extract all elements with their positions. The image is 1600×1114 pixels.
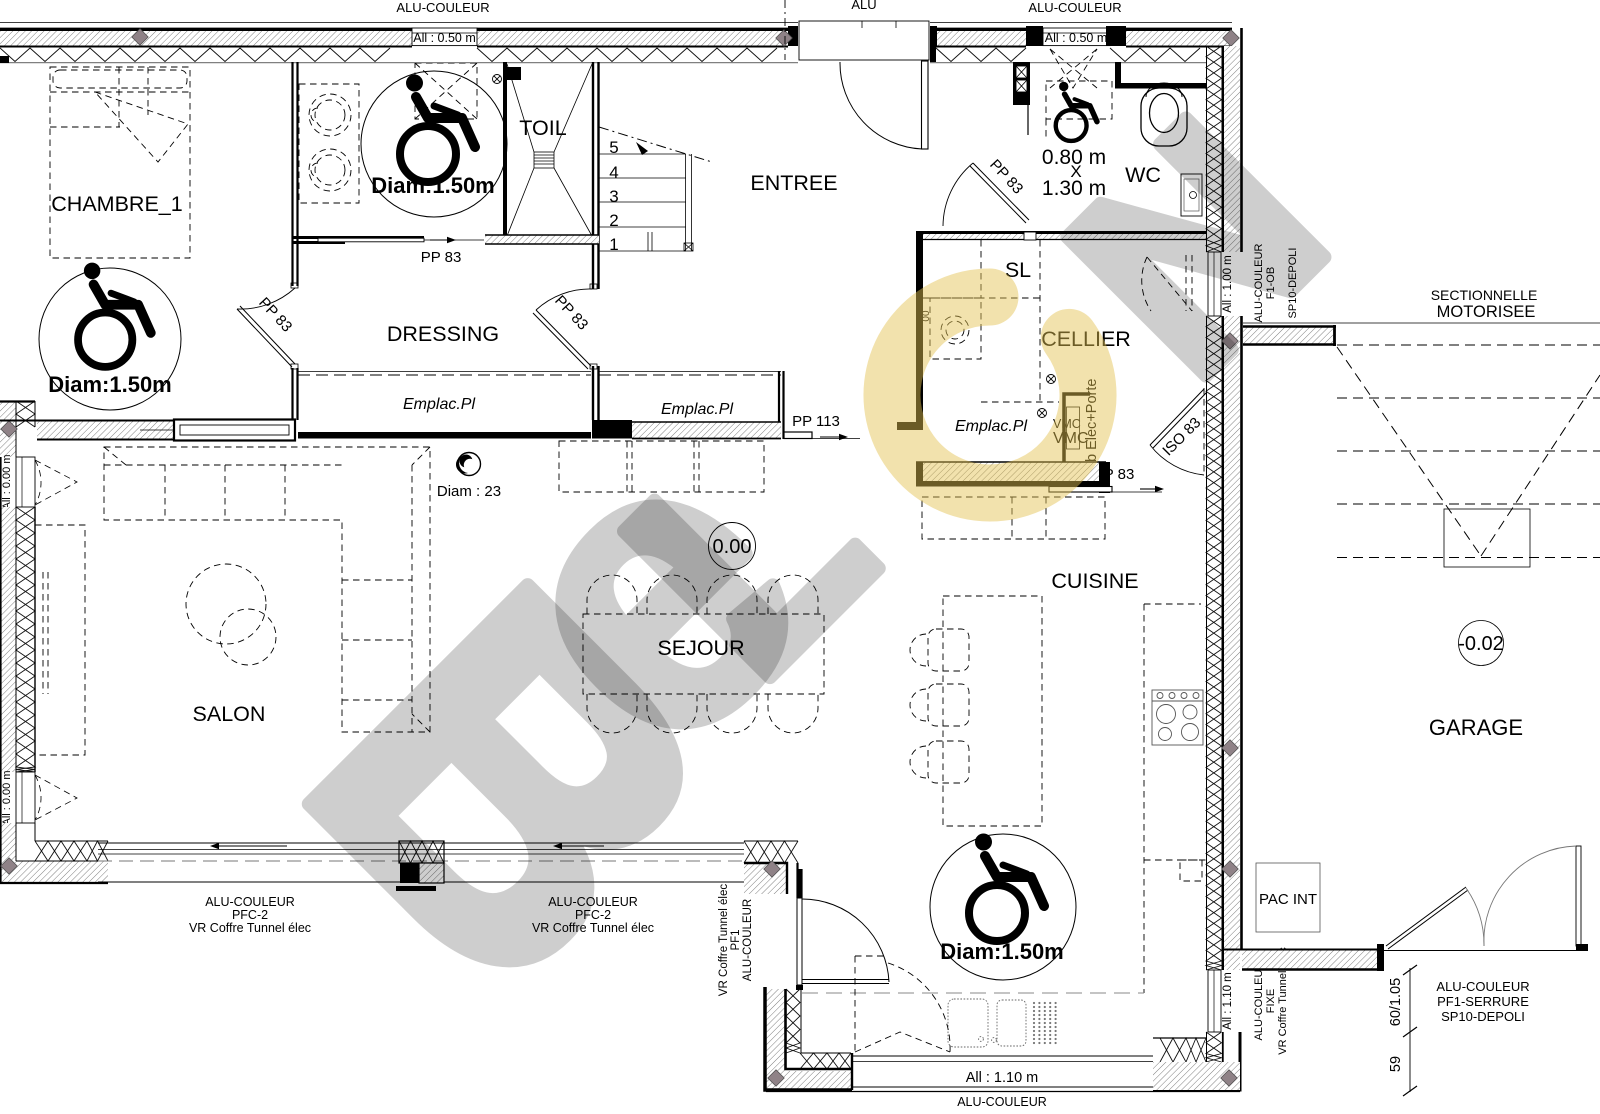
svg-text:All : 1.10 m: All : 1.10 m — [1222, 972, 1234, 1030]
svg-text:FIXE: FIXE — [1265, 989, 1277, 1013]
svg-text:ALU-COULEUR: ALU-COULEUR — [396, 0, 489, 15]
svg-text:SP10-DEPOLI: SP10-DEPOLI — [1441, 1009, 1525, 1024]
svg-text:PF1: PF1 — [730, 929, 742, 950]
svg-text:All : 0.50 m: All : 0.50 m — [413, 31, 476, 45]
svg-text:ALU-COULEUR: ALU-COULEUR — [1028, 0, 1121, 15]
svg-text:2: 2 — [609, 211, 618, 230]
svg-text:Emplac.Pl: Emplac.Pl — [403, 396, 475, 413]
svg-text:3: 3 — [609, 187, 618, 206]
svg-text:59: 59 — [1388, 1056, 1404, 1072]
svg-text:60/1.05: 60/1.05 — [1388, 978, 1404, 1026]
svg-text:MOTORISEE: MOTORISEE — [1437, 303, 1536, 321]
svg-text:ALU-COULEUR: ALU-COULEUR — [957, 1095, 1047, 1109]
svg-text:PP 113: PP 113 — [792, 413, 840, 430]
svg-text:SECTIONNELLE: SECTIONNELLE — [1431, 287, 1538, 303]
svg-text:All : 1.10 m: All : 1.10 m — [966, 1070, 1039, 1086]
svg-text:Diam:1.50m: Diam:1.50m — [940, 939, 1064, 964]
svg-text:PP 83: PP 83 — [421, 249, 462, 266]
svg-text:Diam:1.50m: Diam:1.50m — [48, 372, 172, 397]
svg-text:5: 5 — [609, 138, 618, 157]
svg-text:SALON: SALON — [193, 702, 266, 726]
svg-text:PFC-2: PFC-2 — [232, 908, 268, 922]
svg-text:1: 1 — [609, 235, 618, 254]
svg-text:ALU-COULEUR: ALU-COULEUR — [1436, 979, 1529, 994]
svg-text:ENTREE: ENTREE — [750, 171, 837, 195]
svg-text:Emplac.Pl: Emplac.Pl — [955, 418, 1027, 435]
svg-text:Diam:1.50m: Diam:1.50m — [371, 173, 495, 198]
svg-text:P 83: P 83 — [1104, 466, 1135, 483]
svg-text:DRESSING: DRESSING — [387, 322, 499, 346]
svg-text:GARAGE: GARAGE — [1429, 715, 1523, 740]
svg-text:All : 0.50 m: All : 0.50 m — [1045, 31, 1108, 45]
svg-text:All : 0.00 m: All : 0.00 m — [1, 770, 13, 825]
svg-text:CUISINE: CUISINE — [1051, 569, 1138, 593]
svg-text:-0.02: -0.02 — [1458, 633, 1504, 655]
svg-text:ALU: ALU — [851, 0, 876, 12]
svg-text:PAC INT: PAC INT — [1259, 891, 1317, 908]
svg-text:CHAMBRE_1: CHAMBRE_1 — [51, 192, 182, 216]
svg-text:4: 4 — [609, 163, 618, 182]
svg-text:ALU-COULEUR: ALU-COULEUR — [742, 899, 754, 981]
svg-text:All : 0.00 m: All : 0.00 m — [1, 454, 13, 509]
svg-text:VR Coffre Tunnel élec: VR Coffre Tunnel élec — [718, 884, 730, 997]
svg-text:PF1-SERRURE: PF1-SERRURE — [1437, 994, 1529, 1009]
svg-text:ALU-COULEUR: ALU-COULEUR — [1253, 962, 1265, 1041]
